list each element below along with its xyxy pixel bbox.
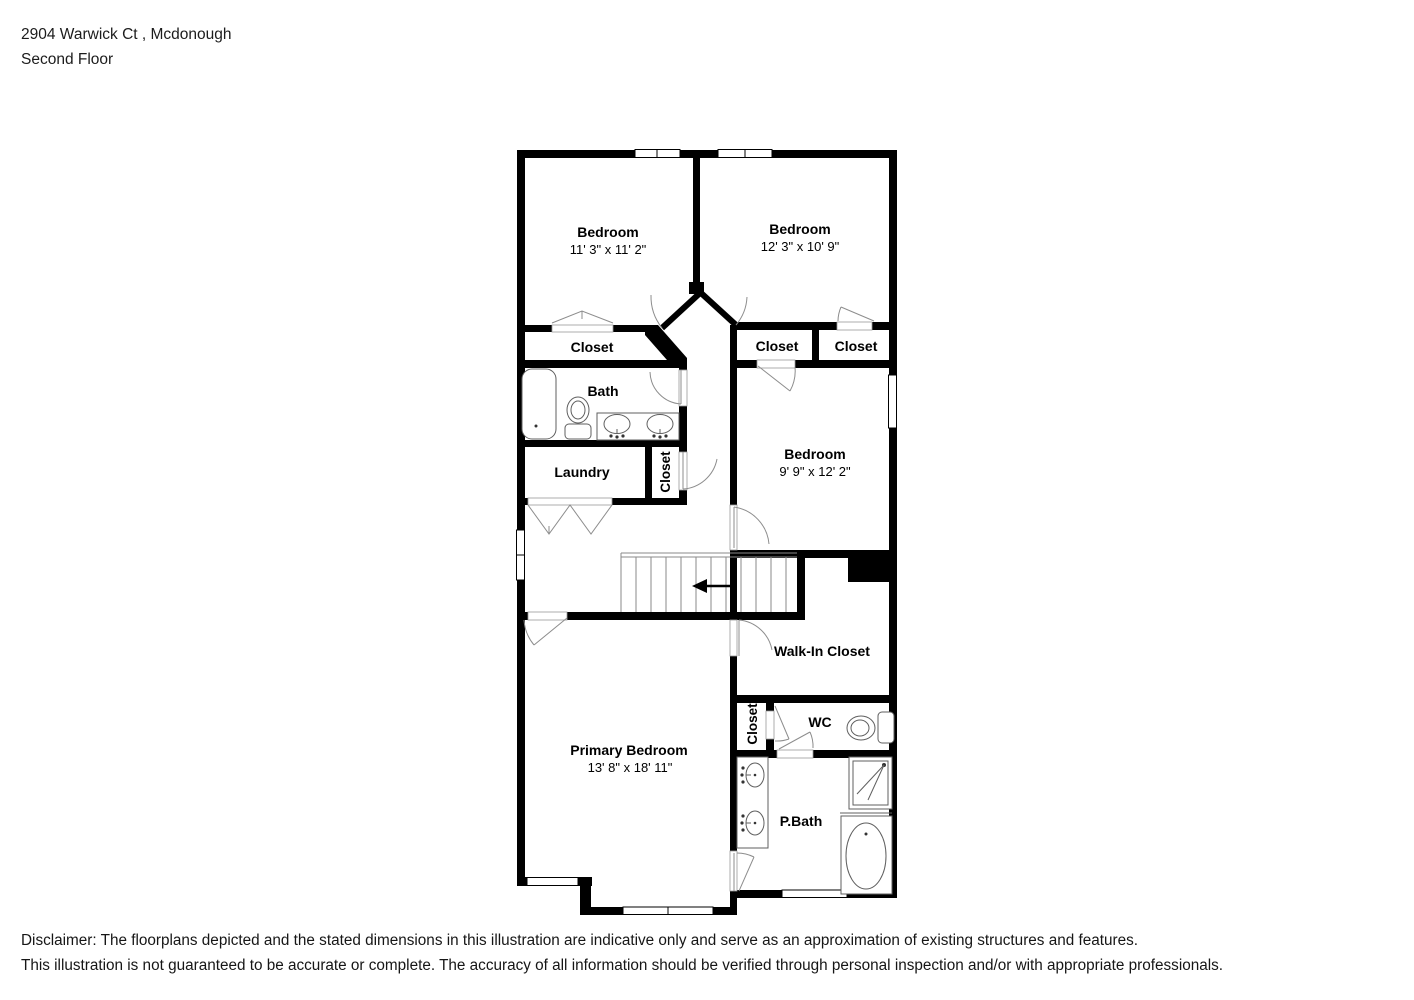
closet-b3-door [758, 366, 795, 391]
closet1-bifold-door [552, 311, 613, 323]
double-sink-counter-icon [737, 757, 768, 848]
bedroom3-door [734, 507, 769, 548]
room-label-primary-bedroom: Primary Bedroom [570, 742, 687, 758]
room-label-bedroom2: Bedroom [769, 221, 830, 237]
room-dims-primary-bedroom: 13' 8" x 18' 11" [588, 760, 673, 775]
disclaimer-line-2: This illustration is not guaranteed to b… [21, 954, 1223, 979]
toilet-icon [847, 712, 894, 743]
walls [517, 150, 897, 915]
floorplan-page: 2904 Warwick Ct , Mcdonough Second Floor [0, 0, 1414, 1000]
closet-b2-door [838, 307, 874, 321]
disclaimer: Disclaimer: The floorplans depicted and … [21, 929, 1223, 978]
room-label-laundry: Laundry [554, 464, 609, 480]
stairs [621, 553, 797, 612]
floor-plan: Bedroom 11' 3" x 11' 2" Bedroom 12' 3" x… [0, 0, 1414, 1000]
stairs-direction-arrow-icon [692, 579, 733, 593]
room-label-bath: Bath [587, 383, 618, 399]
hall-closet-door [683, 452, 717, 489]
toilet-icon [565, 397, 591, 439]
room-dims-bedroom2: 12' 3" x 10' 9" [761, 239, 840, 254]
disclaimer-line-1: Disclaimer: The floorplans depicted and … [21, 929, 1223, 954]
room-label-walk-in-closet: Walk-In Closet [774, 643, 870, 659]
double-sink-vanity-icon [597, 413, 679, 440]
bath-door [650, 370, 681, 404]
room-label-closet-b3: Closet [756, 338, 799, 354]
wc-door [775, 706, 789, 741]
room-label-bedroom3: Bedroom [784, 446, 845, 462]
room-labels: Bedroom 11' 3" x 11' 2" Bedroom 12' 3" x… [554, 221, 877, 829]
walk-in-closet-door [739, 620, 772, 656]
room-label-primary-closet: Closet [745, 703, 760, 745]
laundry-door [528, 505, 612, 534]
room-label-pbath: P.Bath [780, 813, 823, 829]
bathtub-icon [522, 369, 556, 439]
soaking-tub-icon [840, 813, 892, 894]
bath-fixtures [522, 369, 679, 440]
room-label-hall-closet: Closet [658, 451, 673, 493]
primary-bedroom-door [524, 618, 567, 645]
room-label-bedroom1: Bedroom [577, 224, 638, 240]
room-dims-bedroom3: 9' 9" x 12' 2" [779, 464, 851, 479]
room-dims-bedroom1: 11' 3" x 11' 2" [570, 242, 647, 257]
room-label-closet-b2: Closet [835, 338, 878, 354]
wc-fixtures [847, 712, 894, 743]
doors [524, 293, 874, 891]
shower-icon [849, 757, 892, 809]
bedroom1-door [651, 293, 700, 328]
windows [517, 150, 897, 915]
bedroom2-door [701, 293, 747, 325]
room-label-closet1: Closet [571, 339, 614, 355]
room-label-wc: WC [808, 714, 831, 730]
